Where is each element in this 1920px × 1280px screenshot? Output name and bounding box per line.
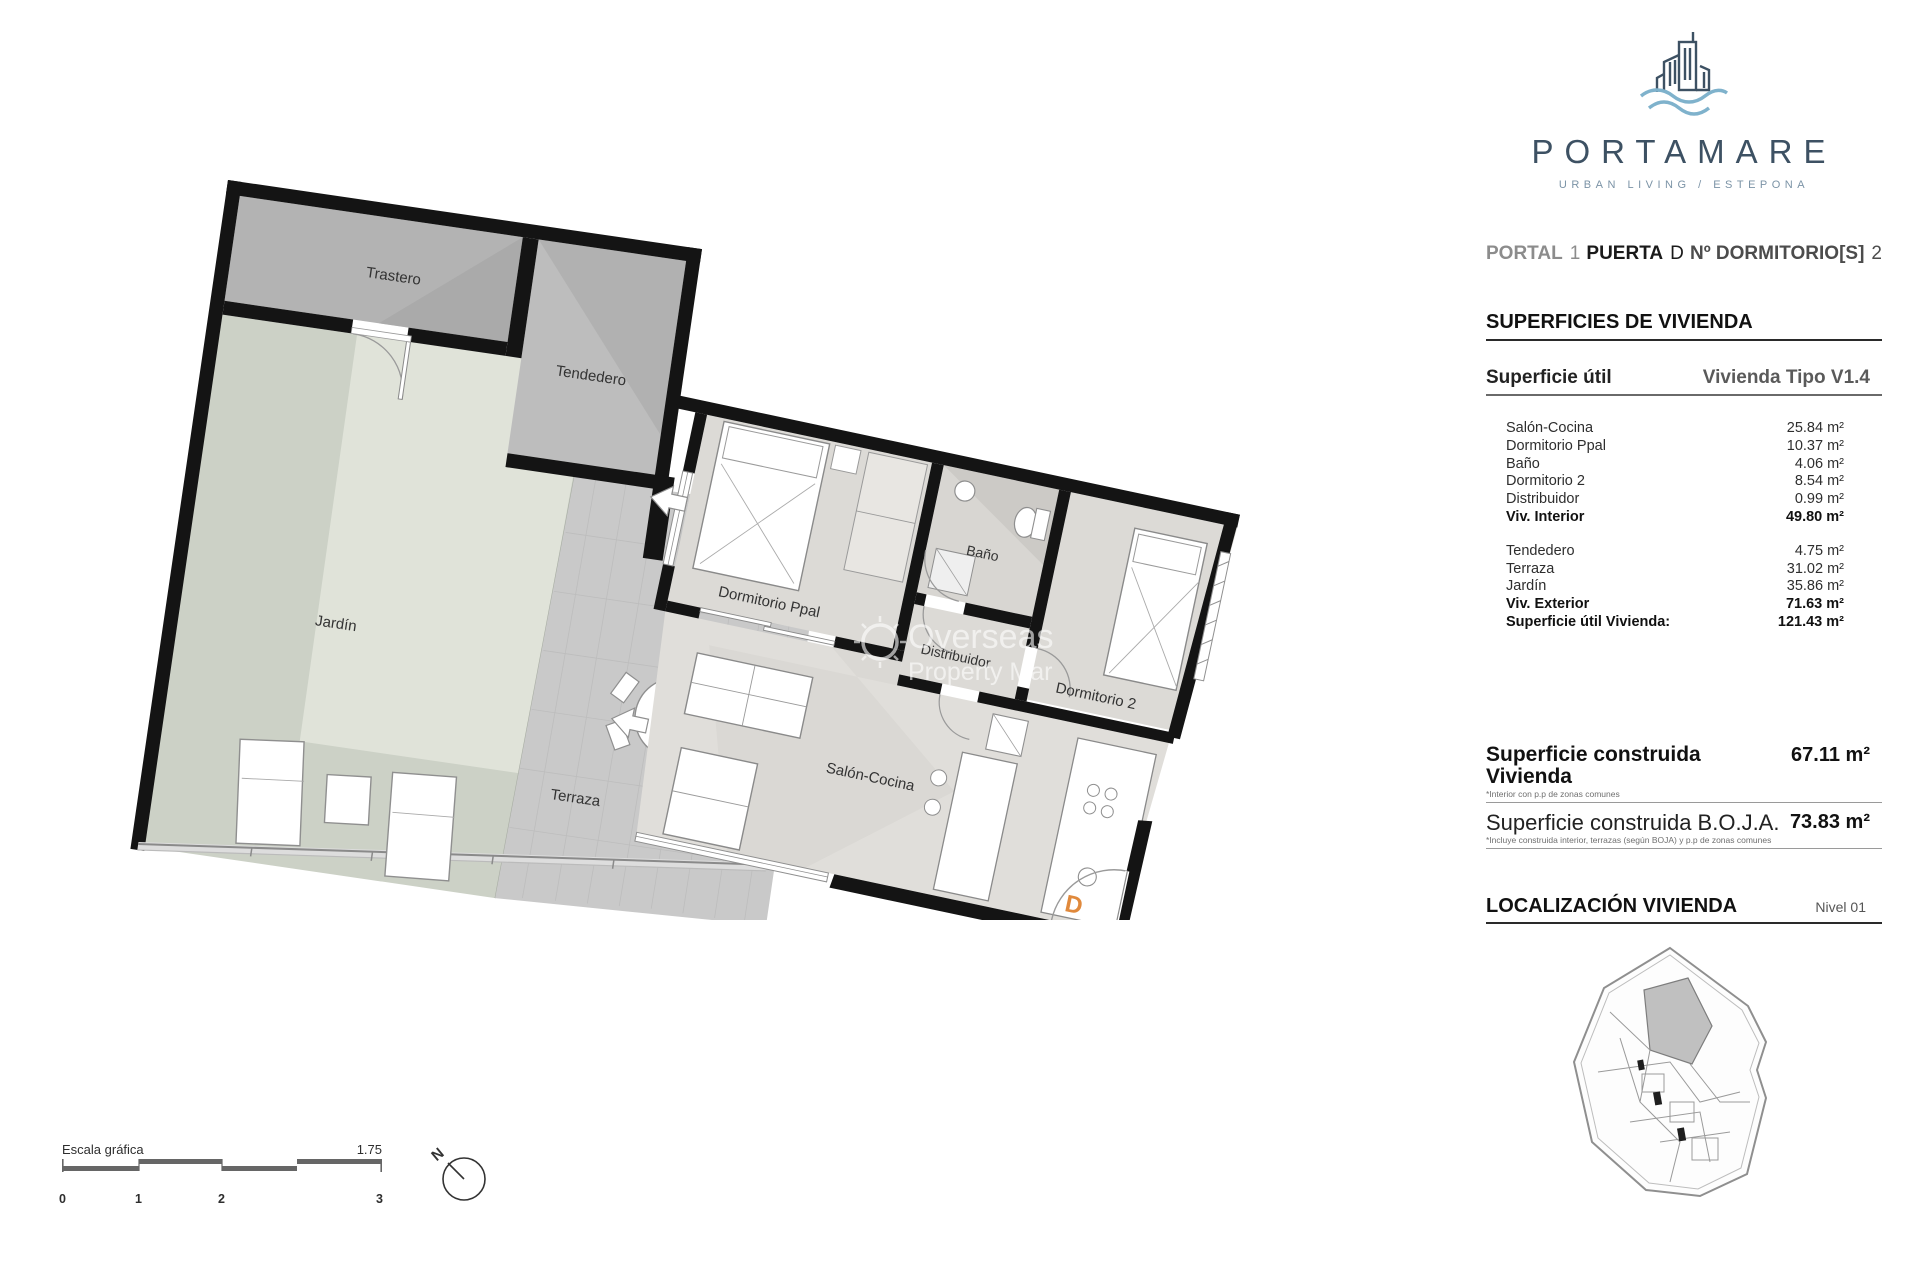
- watermark-line1: Overseas: [908, 618, 1054, 656]
- built-vivienda-value: 67.11 m²: [1791, 744, 1870, 767]
- built-boja-label: Superficie construida B.O.J.A.: [1486, 811, 1779, 834]
- table-row: Jardín35.86 m²: [1506, 578, 1844, 596]
- logo-tagline: URBAN LIVING / ESTEPONA: [1486, 179, 1882, 191]
- north-letter: N: [428, 1145, 447, 1165]
- table-row: Dormitorio Ppal10.37 m²: [1506, 438, 1844, 456]
- floorplan-sheet: { "logo": { "name": "PORTAMARE", "taglin…: [0, 0, 1920, 1280]
- table-row: Tendedero4.75 m²: [1506, 543, 1844, 561]
- table-row: Distribuidor0.99 m²: [1506, 491, 1844, 509]
- built-row: Superficie construida B.O.J.A. *Incluye …: [1486, 811, 1882, 849]
- dormitorios-value: 2: [1871, 243, 1882, 265]
- puerta-value: D: [1670, 243, 1684, 265]
- info-panel: PORTAMARE URBAN LIVING / ESTEPONA PORTAL…: [1486, 0, 1882, 1227]
- vivienda-tipo-label: Vivienda Tipo V1.4: [1703, 367, 1870, 389]
- built-boja-note: *Incluye construida interior, terrazas (…: [1486, 835, 1779, 845]
- surface-table: Salón-Cocina25.84 m² Dormitorio Ppal10.3…: [1486, 420, 1882, 632]
- logo-wordmark: PORTAMARE: [1486, 133, 1882, 171]
- location-level: Nivel 01: [1815, 899, 1866, 915]
- scale-ticks: 0 1 2 3: [62, 1192, 382, 1206]
- puerta-label: PUERTA: [1586, 243, 1663, 265]
- table-row: Dormitorio 28.54 m²: [1506, 473, 1844, 491]
- location-title: LOCALIZACIÓN VIVIENDA: [1486, 895, 1737, 918]
- built-vivienda-note: *Interior con p.p de zonas comunes: [1486, 789, 1791, 799]
- scale-ratio: 1.75: [357, 1142, 382, 1157]
- table-row: Salón-Cocina25.84 m²: [1506, 420, 1844, 438]
- portal-value: 1: [1570, 243, 1581, 265]
- table-row: Terraza31.02 m²: [1506, 561, 1844, 579]
- site-key-plan: [1550, 942, 1800, 1222]
- scale-bar: Escala gráfica 1.75 0 1 2 3: [62, 1142, 382, 1206]
- watermark-line2: Property Mar: [908, 658, 1052, 686]
- scale-bar-graphic: [62, 1157, 382, 1173]
- superficie-util-label: Superficie útil: [1486, 367, 1612, 389]
- location-header: LOCALIZACIÓN VIVIENDA Nivel 01: [1486, 895, 1882, 924]
- built-surface-section: Superficie construida Vivienda *Interior…: [1486, 744, 1882, 849]
- north-arrow: N: [420, 1135, 500, 1215]
- table-row-total: Viv. Interior49.80 m²: [1506, 509, 1844, 527]
- built-row: Superficie construida Vivienda *Interior…: [1486, 744, 1882, 803]
- scale-label: Escala gráfica: [62, 1142, 144, 1157]
- built-boja-value: 73.83 m²: [1790, 811, 1870, 834]
- logo-building-icon: [1619, 30, 1749, 122]
- surface-subheader: Superficie útil Vivienda Tipo V1.4: [1486, 367, 1882, 396]
- floor-plan: Trastero Tendedero Jardín Terraza: [90, 120, 1290, 920]
- built-vivienda-label: Superficie construida Vivienda: [1486, 744, 1791, 788]
- table-row: Baño4.06 m²: [1506, 456, 1844, 474]
- dormitorios-label: Nº DORMITORIO[S]: [1690, 243, 1864, 265]
- table-row-total: Viv. Exterior71.63 m²: [1506, 596, 1844, 614]
- logo: PORTAMARE URBAN LIVING / ESTEPONA: [1486, 30, 1882, 191]
- unit-header: PORTAL 1 PUERTA D Nº DORMITORIO[S] 2: [1486, 243, 1882, 265]
- surfaces-title: SUPERFICIES DE VIVIENDA: [1486, 311, 1882, 341]
- table-row-total: Superficie útil Vivienda:121.43 m²: [1506, 614, 1844, 632]
- portal-label: PORTAL: [1486, 243, 1563, 265]
